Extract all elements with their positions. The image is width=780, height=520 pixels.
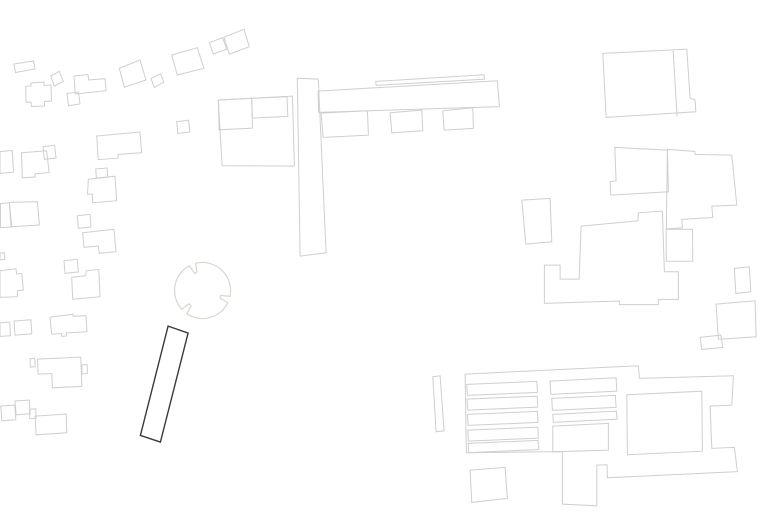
building-se-bar-west-4[interactable] <box>468 427 539 441</box>
building-east-edge-rect-b[interactable] <box>716 301 756 340</box>
map-canvas[interactable] <box>0 0 780 520</box>
building-tilted-house-a[interactable] <box>119 60 146 87</box>
building-se-bar-mid-1[interactable] <box>550 378 617 395</box>
building-se-bar-west-2[interactable] <box>467 396 538 410</box>
building-house-row-a[interactable] <box>9 202 39 227</box>
building-school-vertical-wing[interactable] <box>297 78 326 256</box>
building-se-east-court[interactable] <box>627 391 703 455</box>
building-school-west-room-a[interactable] <box>218 98 252 130</box>
building-small-house-b[interactable] <box>51 71 64 86</box>
building-school-annex-3[interactable] <box>443 108 474 130</box>
building-se-small-square[interactable] <box>470 467 507 502</box>
building-se-bar-west-1[interactable] <box>467 381 538 395</box>
building-stepped-house-b[interactable] <box>50 314 87 336</box>
building-east-edge-rect-c[interactable] <box>700 335 723 349</box>
building-se-bar-mid-4[interactable] <box>553 423 609 451</box>
building-edge-house-a[interactable] <box>0 151 14 174</box>
building-east-stepped-complex[interactable] <box>544 211 678 305</box>
building-sliver-house-a[interactable] <box>30 358 35 367</box>
building-east-square-house[interactable] <box>610 147 668 195</box>
building-ne-hall[interactable] <box>603 49 696 117</box>
building-se-bar-mid-3[interactable] <box>553 411 617 422</box>
building-tilted-house-b[interactable] <box>151 74 164 88</box>
building-se-bar-mid-2[interactable] <box>552 395 616 410</box>
building-se-bar-west-3[interactable] <box>467 411 538 425</box>
building-school-annex-1[interactable] <box>321 111 368 138</box>
building-edge-house-c[interactable] <box>0 269 23 298</box>
building-school-west-block[interactable] <box>218 96 294 166</box>
building-stepped-house-c[interactable] <box>38 357 82 388</box>
building-plus-house[interactable] <box>26 82 52 107</box>
building-edge-sliver-a[interactable] <box>0 253 5 260</box>
map-viewport[interactable] <box>0 0 780 520</box>
building-notched-house-c[interactable] <box>88 176 117 203</box>
building-small-house-f[interactable] <box>77 214 91 228</box>
building-notched-house-a[interactable] <box>97 132 142 160</box>
building-highlighted-bar-building[interactable] <box>140 326 188 442</box>
building-east-big-block[interactable] <box>666 149 736 229</box>
building-annex-small[interactable] <box>96 168 108 178</box>
building-school-west-room-b[interactable] <box>252 97 288 118</box>
building-small-house-h[interactable] <box>14 320 32 335</box>
building-edge-house-d[interactable] <box>0 322 10 336</box>
building-l-house-a[interactable] <box>74 75 106 95</box>
building-small-house-g[interactable] <box>64 259 78 273</box>
building-notched-house-b[interactable] <box>22 151 50 178</box>
building-se-thin-bar[interactable] <box>433 376 444 432</box>
building-stepped-house-a[interactable] <box>72 269 100 299</box>
building-mid-rect-house[interactable] <box>522 198 552 244</box>
building-school-annex-2[interactable] <box>390 110 423 133</box>
building-small-house-e[interactable] <box>43 145 56 159</box>
building-east-edge-rect-a[interactable] <box>734 267 750 294</box>
building-east-small-block[interactable] <box>666 229 693 261</box>
building-se-bar-west-5[interactable] <box>468 440 539 452</box>
building-tilted-house-e[interactable] <box>224 29 249 54</box>
building-school-roof-strip[interactable] <box>376 75 485 86</box>
building-tilted-house-c[interactable] <box>172 48 204 75</box>
building-small-house-d[interactable] <box>177 120 190 133</box>
building-tick-annex[interactable] <box>82 364 88 374</box>
building-cluster-sq-c[interactable] <box>35 414 67 435</box>
line-ne-hall-partition <box>673 51 677 117</box>
building-l-house-b[interactable] <box>83 229 116 253</box>
building-cluster-sq-b[interactable] <box>1 405 16 421</box>
building-small-house-a[interactable] <box>14 61 35 73</box>
building-tilted-house-d[interactable] <box>209 38 226 54</box>
building-cluster-sq-a[interactable] <box>15 400 30 415</box>
building-trefoil-tower[interactable] <box>175 262 231 318</box>
